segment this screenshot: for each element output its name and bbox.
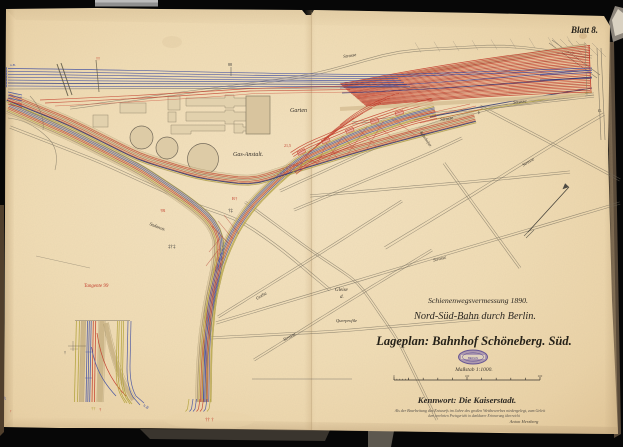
svg-text:Tangente 99: Tangente 99	[84, 284, 109, 289]
svg-text:27: 27	[3, 396, 7, 400]
svg-text:Gas-Anstalt.: Gas-Anstalt.	[233, 152, 263, 158]
svg-text:††: ††	[91, 406, 96, 411]
svg-text:200: 200	[538, 374, 543, 378]
svg-text:n.B.: n.B.	[10, 63, 16, 67]
svg-text:Lageplan: Bahnhof Schöneberg.: Lageplan: Bahnhof Schöneberg. Süd.	[375, 334, 572, 348]
svg-text:BERLIN: BERLIN	[468, 356, 478, 360]
svg-text:Nord-Süd-Bahn durch Berlin.: Nord-Süd-Bahn durch Berlin.	[413, 311, 536, 322]
svg-text:†: †	[64, 350, 66, 355]
svg-text:†‡: †‡	[228, 209, 234, 214]
svg-text:100: 100	[465, 374, 470, 378]
svg-text:†: †	[434, 71, 436, 76]
svg-text:G.: G.	[598, 108, 602, 113]
svg-text:Maßstab 1:1000.: Maßstab 1:1000.	[454, 366, 493, 373]
svg-text:‡†‡: ‡†‡	[168, 245, 176, 250]
svg-text:88: 88	[228, 62, 232, 67]
svg-text:Kennwort: Die Kaiserstadt.: Kennwort: Die Kaiserstadt.	[417, 395, 517, 405]
svg-text:Gleise: Gleise	[335, 288, 349, 293]
svg-text:††: ††	[96, 56, 100, 61]
svg-text:Anton Herzberg: Anton Herzberg	[509, 419, 539, 424]
svg-text:dem verehrten Preisgericht in: dem verehrten Preisgericht in dankbarer …	[428, 414, 521, 418]
svg-text:†R: †R	[160, 208, 165, 213]
svg-text:†: †	[10, 409, 12, 413]
svg-text:Garten: Garten	[290, 108, 307, 114]
svg-text:Querprofile: Querprofile	[336, 318, 357, 323]
svg-text:d.: d.	[340, 295, 344, 300]
svg-text:Blatt 8.: Blatt 8.	[570, 25, 598, 35]
svg-text:†† †: †† †	[205, 418, 214, 423]
svg-text:Schienenwegsvermessung 1890.: Schienenwegsvermessung 1890.	[428, 296, 528, 305]
svg-text:R†: R†	[232, 196, 238, 201]
